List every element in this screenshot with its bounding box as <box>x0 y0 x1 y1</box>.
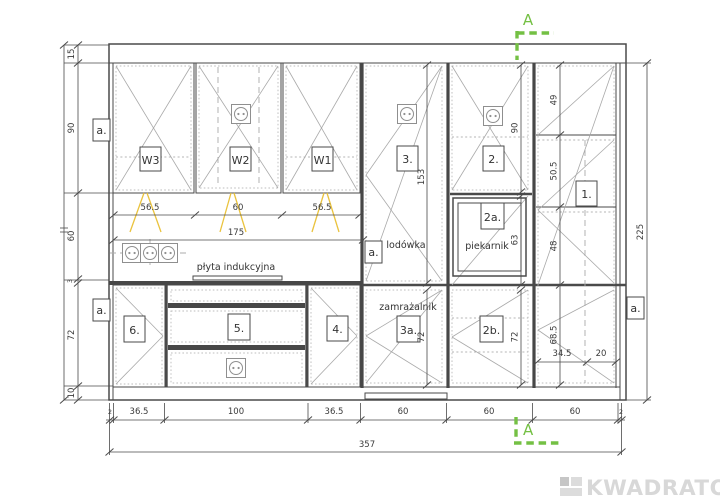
label-w3-text: W3 <box>142 154 160 167</box>
wall-cabinet-w3 <box>113 63 194 193</box>
fridge-label: lodówka <box>386 240 425 251</box>
wall-marker-right-text: a. <box>630 302 640 315</box>
dim-cab2-height: 90 <box>511 123 521 134</box>
dim-freezer-height: 72 <box>417 332 427 343</box>
dim-oven-height: 63 <box>511 235 521 246</box>
dim-cab1-column: 49 50.5 48 68.5 34.5 20 <box>533 62 620 389</box>
oven-label: piekarnik <box>465 241 509 252</box>
section-marker-bottom-label: A <box>523 421 534 439</box>
dim-cab2b-height: 72 <box>511 332 521 343</box>
dim-wall-cab-height: 90 <box>67 123 77 134</box>
socket-cab2 <box>484 107 503 126</box>
dim-fridge-column: 153 72 <box>417 62 431 389</box>
dim-cab1-w1: 34.5 <box>553 349 572 359</box>
dim-col2-width: 60 <box>484 407 495 417</box>
wall-marker-middle-text: a. <box>368 246 378 259</box>
wall-marker-left-lower-text: a. <box>96 304 106 317</box>
label-3-text: 3. <box>402 153 413 166</box>
label-4-text: 4. <box>332 323 343 336</box>
dim-backsplash: 60 <box>67 231 77 242</box>
hob-label: płyta indukcyjna <box>197 262 275 273</box>
label-4: 4. <box>327 316 348 341</box>
label-6-text: 6. <box>129 324 140 337</box>
dim-cab6-width: 36.5 <box>130 407 149 417</box>
wall-cabinet-w2 <box>196 63 281 193</box>
label-3a-text: 3a. <box>400 324 417 337</box>
section-marker-top-label: A <box>523 11 534 29</box>
wall-markers: a. a. a. a. <box>93 119 644 321</box>
dim-cab1-d1: 49 <box>550 95 560 106</box>
tall-cabinet-1-column <box>536 66 616 383</box>
dim-w3-width: 56.5 <box>141 203 160 213</box>
dim-left-chain: 15 90 60 3 72 10 <box>60 42 113 404</box>
label-1-text: 1. <box>581 188 592 201</box>
dim-total-height: 225 <box>636 224 646 240</box>
label-2b: 2b. <box>480 316 503 342</box>
dim-plinth: 10 <box>67 388 77 399</box>
socket-w2 <box>232 105 251 124</box>
label-3: 3. <box>397 146 418 171</box>
hob-front-edge <box>193 276 282 280</box>
label-6: 6. <box>124 316 145 342</box>
dim-right-total: 225 <box>626 60 651 404</box>
logo-icon <box>560 477 582 496</box>
wall-marker-middle: a. <box>365 241 382 263</box>
dim-cab1-d4: 68.5 <box>550 326 560 345</box>
dim-cab1-w2: 20 <box>596 349 607 359</box>
label-2a: 2a. <box>481 203 504 229</box>
label-w2-text: W2 <box>232 154 250 167</box>
label-5: 5. <box>228 314 250 340</box>
wall-marker-left-lower: a. <box>93 299 110 321</box>
label-1: 1. <box>576 181 597 206</box>
dim-off-left: 2 <box>108 408 112 416</box>
plinth-vent-grille <box>365 393 447 399</box>
dim-run-width: 175 <box>228 228 244 238</box>
socket-fridge <box>398 105 417 124</box>
dim-cab1-d2: 50.5 <box>550 162 560 181</box>
dim-total-width: 357 <box>359 440 375 450</box>
dim-col1-width: 60 <box>570 407 581 417</box>
label-w2: W2 <box>230 147 251 171</box>
label-2b-text: 2b. <box>483 324 500 337</box>
kitchen-elevation-drawing: płyta indukcyjna W3 W2 W1 3. 2. 1. 2a. 3… <box>0 0 720 501</box>
label-2a-text: 2a. <box>484 211 501 224</box>
dim-cab2-column: 90 63 72 <box>511 62 526 389</box>
dim-w2-width: 60 <box>233 203 244 213</box>
wall-marker-left-upper: a. <box>93 119 110 141</box>
dim-fridge-height: 153 <box>417 169 427 185</box>
dim-w1-width: 56.5 <box>313 203 332 213</box>
wall-marker-right: a. <box>627 297 644 319</box>
dim-cab1-d3: 48 <box>550 241 560 252</box>
freezer-label: zamrażalnik <box>379 302 437 313</box>
wall-marker-left-upper-text: a. <box>96 124 106 137</box>
dim-cab5-width: 100 <box>228 407 244 417</box>
dim-bulkhead: 15 <box>67 49 77 60</box>
hob-socket-group <box>110 239 190 268</box>
wall-cabinet-w1 <box>283 63 360 193</box>
logo: KWADRATON <box>560 476 720 501</box>
label-w1: W1 <box>312 147 333 171</box>
dim-cab4-width: 36.5 <box>325 407 344 417</box>
section-marker-bottom: A <box>514 417 560 444</box>
label-w1-text: W1 <box>314 154 332 167</box>
label-2-text: 2. <box>488 153 499 166</box>
label-5-text: 5. <box>234 322 245 335</box>
hob-annotation: płyta indukcyjna <box>193 262 282 280</box>
worktop <box>109 281 362 285</box>
dim-base-height: 72 <box>67 330 77 341</box>
dim-bottom-chain: 2 36.5 100 36.5 60 60 60 2 357 <box>106 403 626 456</box>
socket-drawer <box>227 359 246 378</box>
dim-off-right: 2 <box>619 408 623 416</box>
logo-text: KWADRATON <box>586 476 720 501</box>
dim-worktop: 3 <box>66 279 74 283</box>
dim-top-inner: 56.5 60 56.5 175 <box>110 203 368 244</box>
section-marker-top: A <box>517 11 554 60</box>
label-2: 2. <box>483 146 504 171</box>
label-w3: W3 <box>140 147 161 171</box>
dim-col3-width: 60 <box>398 407 409 417</box>
cabinet-structure <box>109 44 626 400</box>
